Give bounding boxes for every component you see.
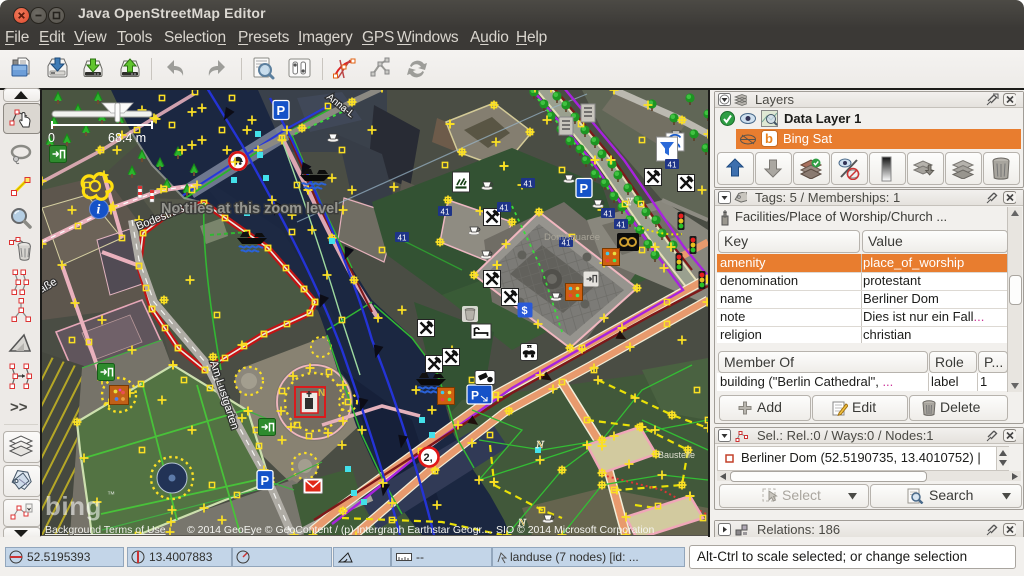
svg-text:© 2014 GeoEye © GeoContent / (: © 2014 GeoEye © GeoContent / (p) Intergr… [187, 524, 655, 535]
svg-text:41: 41 [398, 234, 407, 243]
svg-text:68.4 m: 68.4 m [108, 131, 146, 145]
svg-text:$: $ [522, 305, 528, 317]
svg-text:bing: bing [45, 491, 102, 521]
svg-text:41: 41 [604, 210, 613, 219]
svg-text:Background Terms of Use: Background Terms of Use [45, 524, 166, 535]
svg-text:2,: 2, [424, 452, 433, 464]
svg-text:b: b [765, 131, 773, 146]
svg-text:N: N [535, 439, 545, 451]
svg-text:41: 41 [441, 208, 450, 217]
svg-text:No tiles at this zoom level: No tiles at this zoom level [161, 201, 338, 217]
svg-text:41: 41 [500, 204, 509, 213]
svg-text:™: ™ [107, 490, 115, 499]
svg-text:i: i [97, 203, 101, 218]
svg-text:TAXI: TAXI [527, 346, 535, 350]
svg-text:P: P [471, 389, 479, 403]
svg-text:0: 0 [48, 131, 55, 145]
svg-text:DomAquarée: DomAquarée [544, 232, 600, 243]
svg-text:Baustelle: Baustelle [658, 450, 695, 460]
svg-text:41: 41 [617, 221, 626, 230]
svg-text:41: 41 [668, 161, 677, 170]
svg-text:41: 41 [524, 180, 533, 189]
